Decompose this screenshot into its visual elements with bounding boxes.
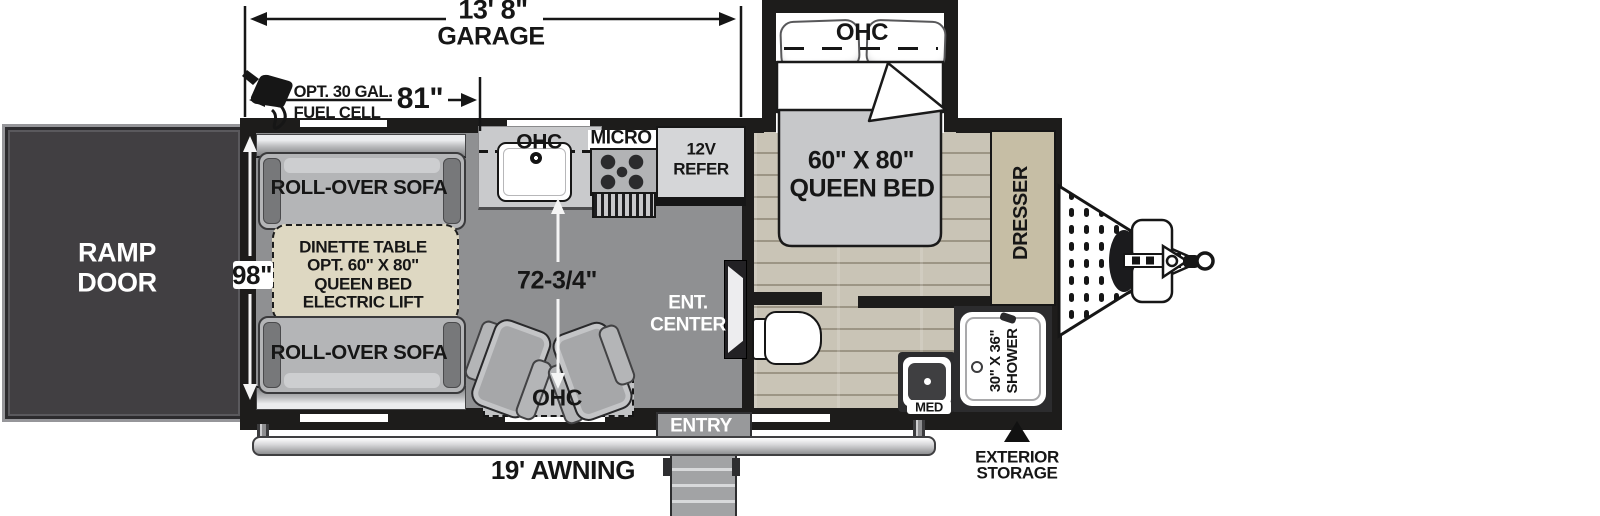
garage-ohc-label: OHC [532, 387, 582, 410]
micro-label: MICRO [590, 129, 651, 148]
sofa-back-pad [284, 158, 440, 173]
ramp-door-label-2: DOOR [77, 270, 156, 297]
bed-name-label: QUEEN BED [789, 177, 934, 202]
garage-dim-label: GARAGE [437, 25, 544, 50]
fuel-cell-label-1: OPT. 30 GAL. [294, 84, 393, 101]
dinette-label-3: QUEEN BED [314, 276, 411, 293]
faucet-icon [530, 152, 542, 164]
step-hinge-icon [663, 458, 671, 476]
dinette-label-1: DINETTE TABLE [299, 239, 427, 256]
tv-icon [728, 266, 743, 353]
bed-slideout-left-wall [762, 0, 776, 132]
garage-length-dim: 13' 8" [458, 0, 527, 24]
fridge-base [658, 197, 744, 204]
shower-label: 30" X 36" SHOWER [987, 328, 1021, 393]
vanity-faucet-icon [924, 378, 931, 385]
awning-bar [252, 436, 936, 456]
bed-ohc-label: OHC [836, 21, 888, 45]
bath-wall-left [742, 292, 822, 305]
sofa-bottom-label: ROLL-OVER SOFA [271, 343, 448, 364]
fuel-cell-label-2: FUEL CELL [294, 105, 381, 122]
shower-drain-icon [971, 361, 983, 373]
entry-steps [670, 450, 737, 516]
hitch-assembly-icon [1059, 186, 1213, 336]
sofa-top-label: ROLL-OVER SOFA [271, 178, 448, 199]
ent-center-label-2: CENTER [650, 316, 726, 335]
floorplan: RAMP DOOR OHC 60" X 80" QUEEN BED ROLL-O… [0, 0, 1600, 516]
med-label: MED [915, 401, 943, 414]
entry-label: ENTRY [670, 417, 732, 436]
dinette-label-4: ELECTRIC LIFT [303, 294, 423, 311]
exterior-storage-label-2: STORAGE [977, 465, 1058, 482]
shower-name-label: SHOWER [1004, 328, 1021, 393]
refer-label-2: REFER [673, 161, 729, 178]
range-vent-icon [592, 192, 656, 218]
step-hinge-icon [732, 458, 740, 476]
pillow-dash-line [784, 47, 938, 50]
refer-label-1: 12V [686, 141, 715, 158]
kitchen-ohc-label: OHC [516, 132, 561, 153]
entertainment-center [724, 260, 747, 359]
bottom-window-3 [752, 414, 830, 422]
bed-slideout-right-wall [944, 0, 958, 132]
awning-label: 19' AWNING [491, 457, 635, 483]
exterior-storage-arrow-icon [1004, 421, 1030, 442]
ent-center-label-1: ENT. [668, 294, 708, 313]
ramp-door-label-1: RAMP [78, 240, 156, 267]
cooktop-icon [590, 148, 658, 196]
dresser-label: DRESSER [1011, 166, 1031, 260]
bottom-window-1 [300, 414, 388, 422]
dinette-label-2: OPT. 60" X 80" [307, 257, 419, 274]
body-width-dim: 98" [232, 262, 272, 288]
bed-size-label: 60" X 80" [808, 149, 914, 174]
garage-width-dim: 81" [397, 84, 443, 114]
shower-size-label: 30" X 36" [987, 328, 1004, 393]
ohc-dash-left [479, 150, 497, 153]
toilet-icon [764, 311, 822, 365]
bed-slideout-top-wall [762, 0, 958, 13]
sofa-back-pad [284, 373, 440, 388]
interior-span-dim: 72-3/4" [517, 269, 597, 294]
